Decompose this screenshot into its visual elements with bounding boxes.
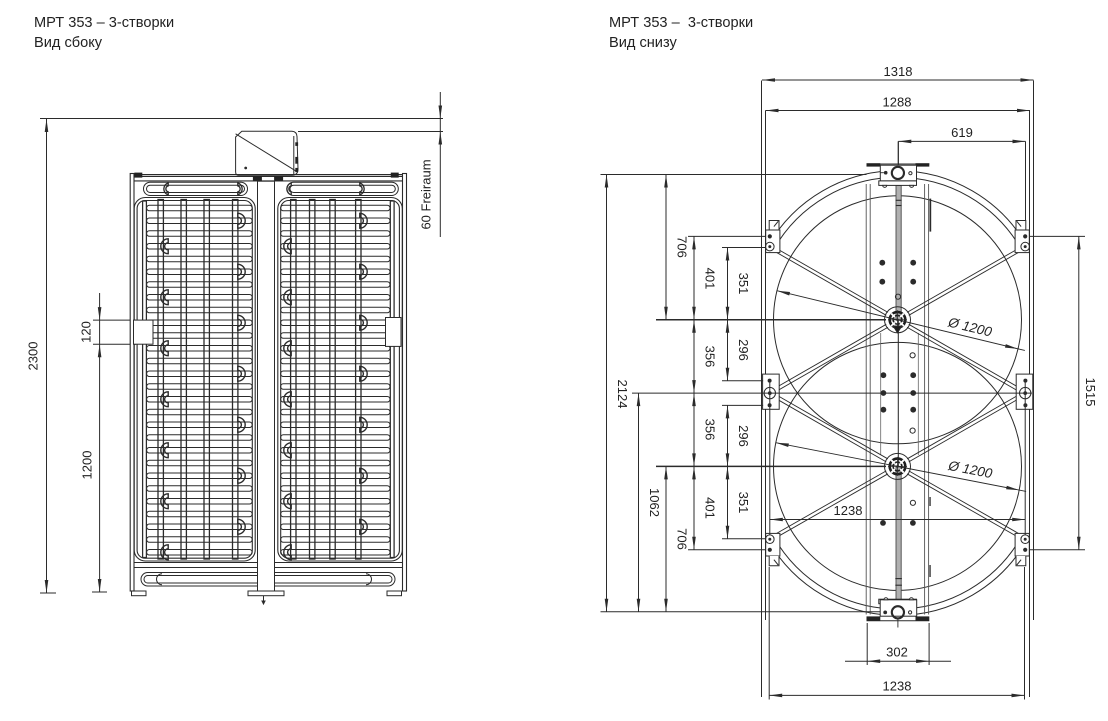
svg-text:2300: 2300 (26, 342, 41, 371)
svg-text:401: 401 (703, 268, 718, 290)
svg-text:1238: 1238 (883, 679, 912, 694)
svg-text:1318: 1318 (884, 64, 913, 79)
svg-text:1200: 1200 (80, 451, 95, 480)
svg-text:120: 120 (79, 321, 94, 343)
svg-text:302: 302 (886, 645, 908, 660)
svg-text:1288: 1288 (883, 95, 912, 110)
svg-text:706: 706 (675, 528, 690, 550)
svg-text:296: 296 (736, 339, 751, 361)
svg-text:60 Freiraum: 60 Freiraum (419, 159, 434, 229)
svg-text:356: 356 (703, 419, 718, 441)
svg-text:296: 296 (736, 425, 751, 447)
svg-text:Вид сбоку: Вид сбоку (34, 35, 103, 51)
svg-text:356: 356 (703, 346, 718, 368)
svg-text:1515: 1515 (1083, 378, 1098, 407)
svg-text:706: 706 (675, 236, 690, 258)
svg-text:619: 619 (951, 125, 973, 140)
svg-text:МРТ 353 – 3-створки: МРТ 353 – 3-створки (34, 15, 174, 31)
svg-text:МРТ 353 – 3-створки: МРТ 353 – 3-створки (609, 15, 753, 31)
svg-text:2124: 2124 (615, 380, 630, 409)
svg-text:351: 351 (736, 273, 751, 295)
svg-text:1062: 1062 (647, 488, 662, 517)
svg-text:1238: 1238 (834, 503, 863, 518)
svg-text:351: 351 (736, 492, 751, 514)
svg-text:Вид снизу: Вид снизу (609, 35, 677, 51)
svg-text:401: 401 (703, 497, 718, 519)
